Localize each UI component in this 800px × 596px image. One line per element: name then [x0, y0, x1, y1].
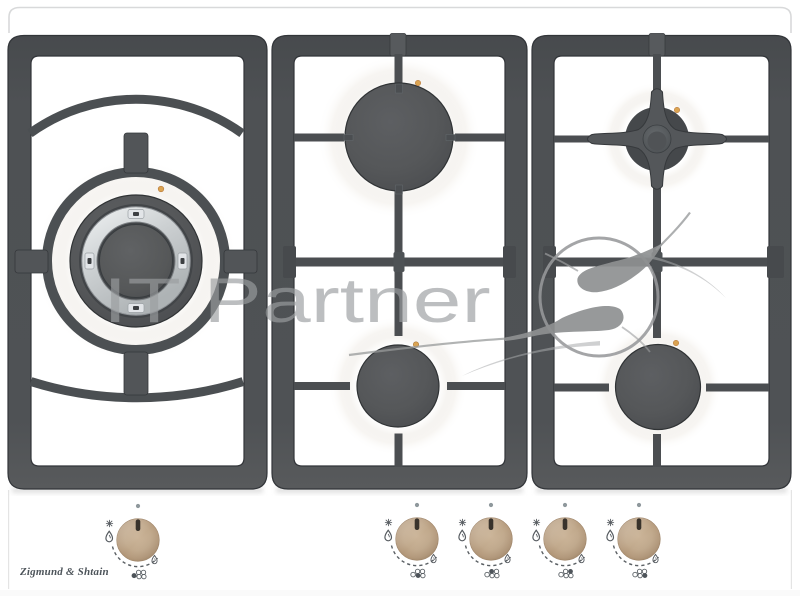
svg-text:IT Partner: IT Partner: [103, 266, 491, 336]
svg-text:Zigmund & Shtain: Zigmund & Shtain: [19, 566, 109, 578]
